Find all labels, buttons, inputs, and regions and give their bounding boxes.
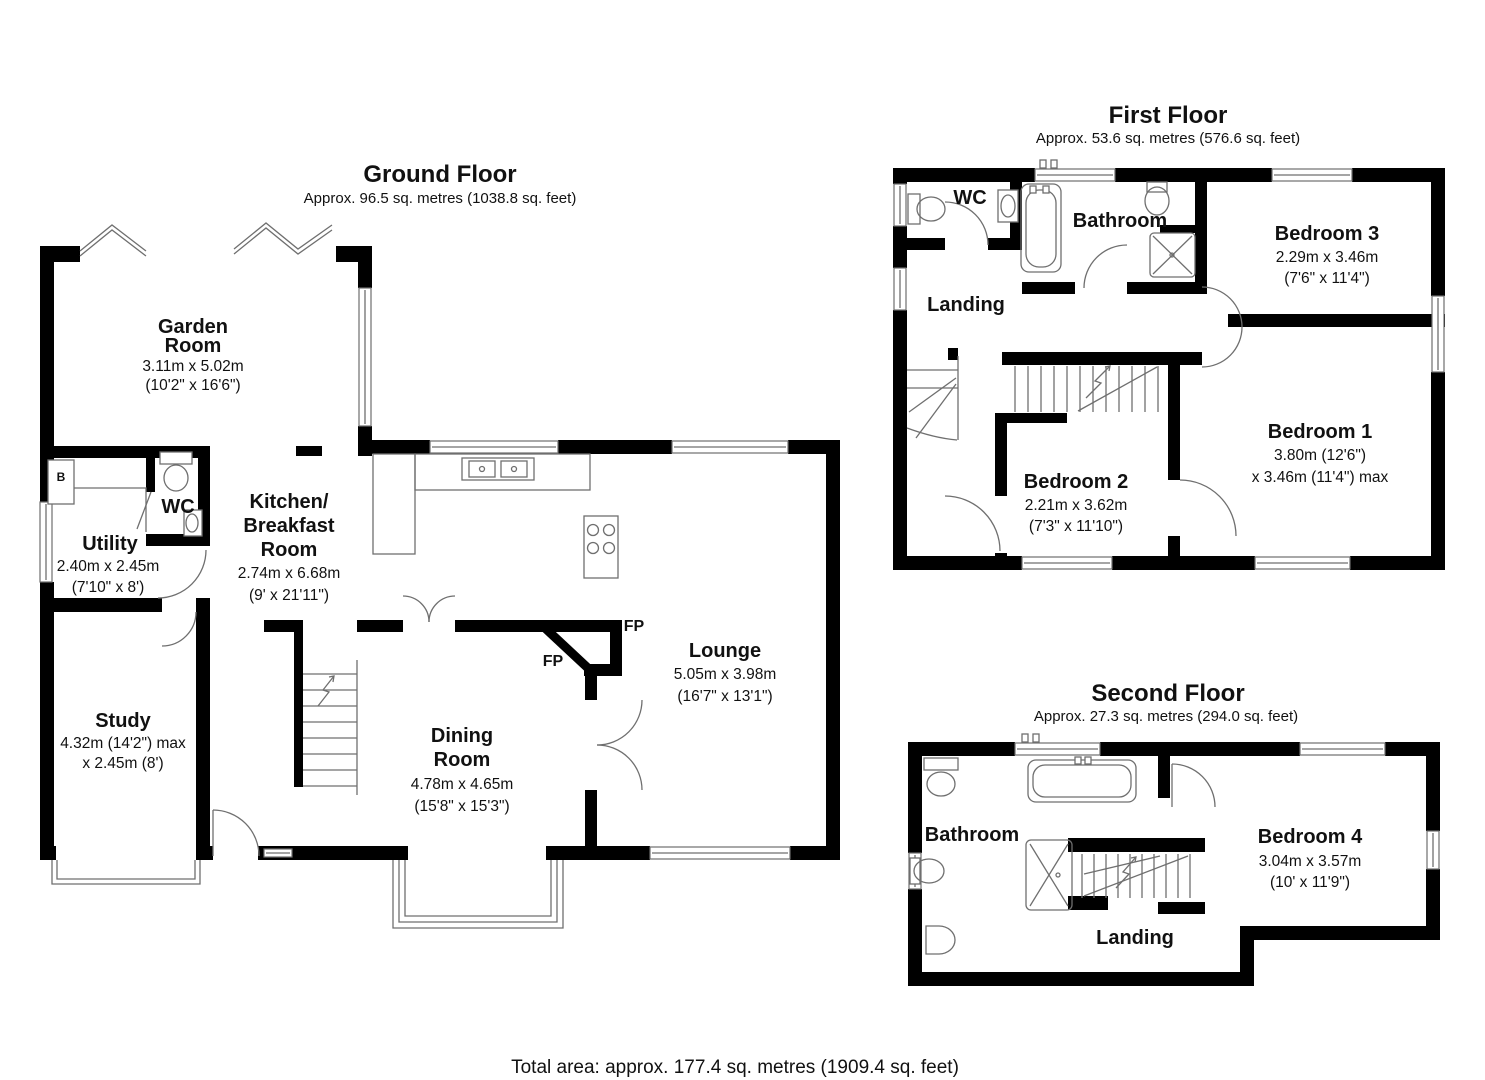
- kitchen-dim-ft: (9' x 21'11"): [249, 587, 329, 604]
- dining-room-dim-ft: (15'8" x 15'3"): [414, 798, 509, 815]
- floorplan-canvas: Ground Floor Approx. 96.5 sq. metres (10…: [0, 0, 1485, 1080]
- dining-room-label: Dining: [431, 725, 493, 747]
- fireplace-label-upper: FP: [624, 618, 645, 635]
- ground-floor-doors: [137, 492, 642, 856]
- wc-toilet: [917, 197, 945, 221]
- study-dim-m: 4.32m (14'2") max: [60, 735, 186, 752]
- second-bidet: [926, 926, 955, 954]
- kitchen-dim-m: 2.74m x 6.68m: [238, 565, 341, 582]
- second-bathtub: [1028, 760, 1136, 802]
- bedroom2-dim-ft: (7'3" x 11'10"): [1029, 518, 1123, 535]
- kitchen-label3: Room: [261, 539, 318, 561]
- garden-room-dim-m: 3.11m x 5.02m: [142, 358, 243, 375]
- lounge-label: Lounge: [689, 640, 761, 662]
- total-area-label: Total area: approx. 177.4 sq. metres (19…: [511, 1057, 959, 1078]
- bedroom3-label: Bedroom 3: [1275, 223, 1379, 245]
- bedroom1-label: Bedroom 1: [1268, 421, 1372, 443]
- bedroom2-label: Bedroom 2: [1024, 471, 1128, 493]
- ground-floor-title: Ground Floor: [363, 161, 516, 188]
- lounge-dim-m: 5.05m x 3.98m: [674, 666, 777, 683]
- floorplan-svg: Ground Floor Approx. 96.5 sq. metres (10…: [0, 0, 1485, 1080]
- fireplace-label-lower: FP: [543, 653, 564, 670]
- first-floor-stairs: [907, 356, 1158, 440]
- utility-dim-ft: (7'10" x 8'): [72, 579, 145, 596]
- first-bathroom-label: Bathroom: [1073, 210, 1167, 232]
- garden-room-zigzag: [80, 223, 332, 256]
- bedroom1-dim-m: 3.80m (12'6"): [1274, 447, 1366, 464]
- second-floor-stairs: [1082, 854, 1190, 898]
- study-dim-ft: x 2.45m (8'): [82, 755, 163, 772]
- bedroom4-dim-ft: (10' x 11'9"): [1270, 874, 1350, 891]
- second-floor-fixtures: [910, 757, 1136, 954]
- kitchen-label2: Breakfast: [243, 515, 335, 537]
- bedroom4-label: Bedroom 4: [1258, 826, 1363, 848]
- utility-label: Utility: [82, 533, 138, 555]
- first-landing-label: Landing: [927, 294, 1005, 316]
- second-bathroom-label: Bathroom: [925, 824, 1019, 846]
- bedroom2-dim-m: 2.21m x 3.62m: [1025, 497, 1128, 514]
- wc-label: WC: [161, 496, 194, 518]
- second-floor-doors: [1172, 764, 1215, 807]
- bedroom3-dim-ft: (7'6" x 11'4"): [1284, 270, 1370, 287]
- second-floor-plan: Second Floor Approx. 27.3 sq. metres (29…: [908, 680, 1440, 986]
- ground-floor-plan: Ground Floor Approx. 96.5 sq. metres (10…: [40, 161, 840, 928]
- second-floor-subtitle: Approx. 27.3 sq. metres (294.0 sq. feet): [1034, 708, 1298, 725]
- lounge-dim-ft: (16'7" x 13'1"): [677, 688, 772, 705]
- ground-floor-stairs: [303, 660, 357, 795]
- kitchen-label: Kitchen/: [250, 491, 329, 513]
- dining-room-label2: Room: [434, 749, 491, 771]
- first-floor-title: First Floor: [1109, 102, 1228, 129]
- utility-dim-m: 2.40m x 2.45m: [57, 558, 160, 575]
- kitchen-counter: [373, 454, 415, 554]
- bedroom1-dim-ft: x 3.46m (11'4") max: [1252, 469, 1389, 486]
- study-label: Study: [95, 710, 151, 732]
- second-floor-title: Second Floor: [1091, 680, 1244, 707]
- garden-room-dim-ft: (10'2" x 16'6"): [145, 377, 240, 394]
- second-landing-label: Landing: [1096, 927, 1174, 949]
- bedroom4-dim-m: 3.04m x 3.57m: [1259, 853, 1362, 870]
- second-toilet: [927, 772, 955, 796]
- ground-floor-subtitle: Approx. 96.5 sq. metres (1038.8 sq. feet…: [304, 190, 577, 207]
- first-floor-subtitle: Approx. 53.6 sq. metres (576.6 sq. feet): [1036, 130, 1300, 147]
- first-floor-plan: First Floor Approx. 53.6 sq. metres (576…: [893, 102, 1445, 570]
- boiler-label: B: [57, 470, 66, 484]
- first-wc-label: WC: [953, 187, 986, 209]
- garden-room-label2: Room: [165, 335, 222, 357]
- dining-room-dim-m: 4.78m x 4.65m: [411, 776, 514, 793]
- bedroom3-dim-m: 2.29m x 3.46m: [1276, 249, 1379, 266]
